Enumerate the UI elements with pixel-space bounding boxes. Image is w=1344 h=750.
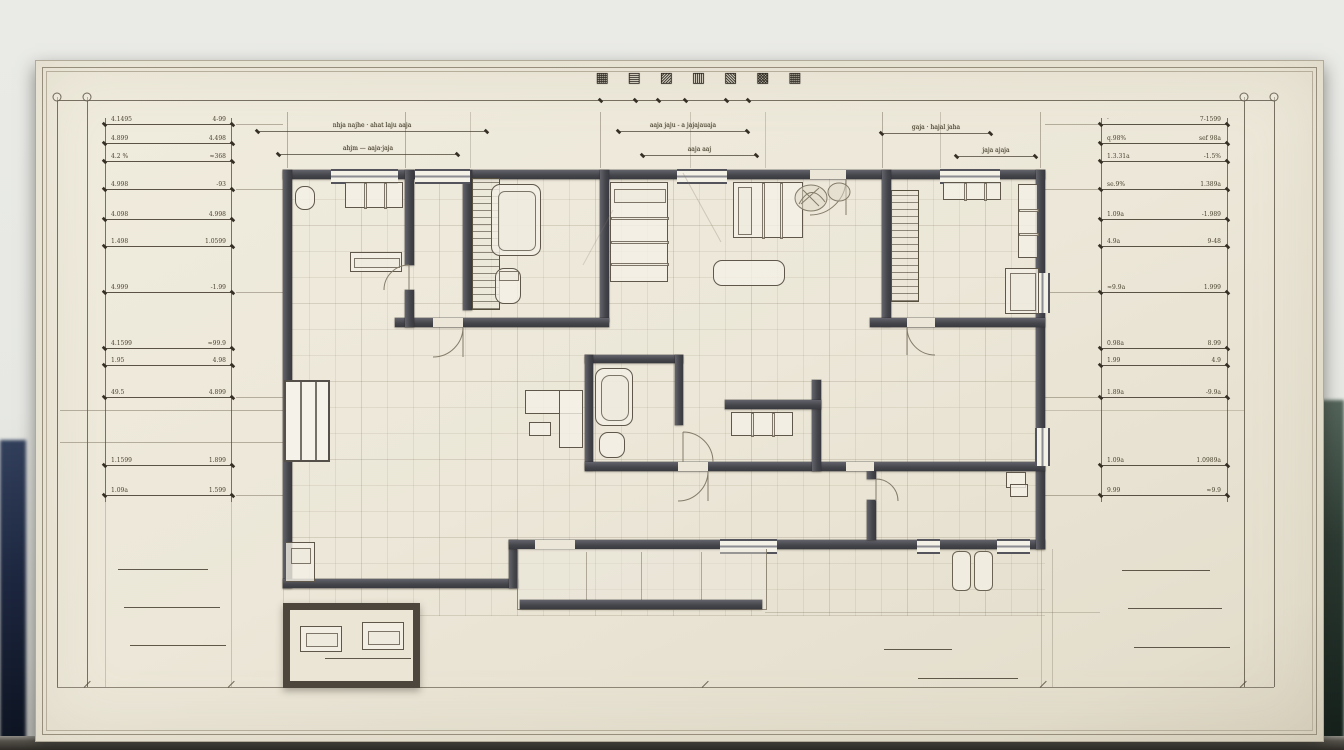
wall-bath-right (675, 355, 683, 425)
baseline-tick (633, 98, 638, 103)
dimension-value-left: 4.998 (111, 181, 128, 188)
dimension-value-left: 1.09a (111, 487, 128, 494)
extension-line (236, 124, 283, 125)
dimension-row: 1.3.31a -1.5% (1100, 161, 1228, 162)
furniture-bench (300, 626, 342, 652)
door-gap (846, 462, 874, 471)
door-gap (678, 462, 708, 471)
dimension-value-left: 4.1495 (111, 116, 132, 123)
drawing-title: ▦ ▤ ▨ ▥ ▧ ▩ ▦ (596, 70, 809, 86)
dimension-value-right: 1.599 (209, 487, 226, 494)
dimension-value-right: 1.389a (1200, 181, 1221, 188)
dimension-row: 4.2 % ≈368 (104, 161, 233, 162)
furniture-bed (610, 182, 668, 282)
dimension-value-right: -1.5% (1204, 153, 1221, 160)
dimension-value-right: 1.999 (1204, 284, 1221, 291)
fixture-box (1010, 484, 1028, 497)
paved-pad (952, 551, 971, 591)
dimension-value-left: q.98% (1107, 135, 1126, 142)
baseline-tick (724, 98, 729, 103)
dimension-text: jaja ajaja (956, 147, 1036, 154)
frame-right-line-2 (1274, 97, 1275, 687)
extension-line (1045, 189, 1100, 190)
dimension-text: gaja · hajal jaha (881, 124, 991, 131)
furniture-chair (295, 186, 315, 210)
door-gap (810, 170, 846, 179)
dimension-value-right: 4-99 (213, 116, 226, 123)
extension-line (1045, 495, 1100, 496)
dimension-line (956, 156, 1036, 157)
porch-step-line (641, 552, 642, 602)
top-dimension: aaja jaju - a jajajauaja (618, 122, 748, 132)
plan-edge-extension (1052, 549, 1053, 687)
dimension-row: 1.89a -9.9a (1100, 397, 1228, 398)
shelving-hatch (891, 190, 919, 302)
dimension-value-right: 4.899 (209, 389, 226, 396)
drawing-layer: ▦ ▤ ▨ ▥ ▧ ▩ ▦ (0, 0, 1344, 750)
dimension-text: ahjm — aaja·jaja (278, 145, 458, 152)
dimension-value-left: 1.89a (1107, 389, 1124, 396)
dimension-value-left: 4.9a (1107, 238, 1120, 245)
dimension-row: · 7-1599 (1100, 124, 1228, 125)
bay-window (284, 380, 330, 462)
paved-pad (974, 551, 993, 591)
dimension-value-left: 0.98a (1107, 340, 1124, 347)
dimension-row: 4.999 -1.99 (104, 292, 233, 293)
extension-line (236, 292, 283, 293)
dimension-value-right: 9-48 (1208, 238, 1221, 245)
wall-exterior-left (283, 170, 292, 588)
dimension-value-right: -9.9a (1206, 389, 1221, 396)
extension-line (1045, 292, 1100, 293)
dimension-value-right: 4.98 (213, 357, 226, 364)
dimension-text: nhja najhe · ahat laju aaja (257, 122, 487, 129)
furniture-bench (362, 622, 404, 650)
furniture-sofa (713, 260, 785, 286)
window (415, 169, 470, 184)
extension-line (690, 112, 691, 168)
extension-line (236, 495, 283, 496)
window (997, 539, 1030, 554)
window (917, 539, 940, 554)
frame-left-line-1 (57, 97, 58, 687)
dimension-line (278, 154, 458, 155)
wall-interior (395, 318, 609, 327)
dimension-text: aaja aaj (642, 146, 757, 153)
dimension-value-right: -1.989 (1202, 211, 1221, 218)
dimension-value-right: -1.99 (211, 284, 226, 291)
baseline-tick (656, 98, 661, 103)
extension-line (1040, 112, 1041, 168)
dimension-value-right: ≈99.9 (208, 340, 226, 347)
top-dimension: nhja najhe · ahat laju aaja (257, 122, 487, 132)
dimension-row: 1.1599 1.899 (104, 465, 233, 466)
furniture-window-seat (1005, 268, 1039, 314)
dimension-value-left: 4.098 (111, 211, 128, 218)
top-dimension: ahjm — aaja·jaja (278, 145, 458, 155)
door-gap (433, 318, 463, 327)
dimension-text: aaja jaju - a jajajauaja (618, 122, 748, 129)
top-dimension: aaja aaj (642, 146, 757, 156)
wall-interior (405, 290, 414, 327)
dimension-row: 4.998 -93 (104, 189, 233, 190)
dimension-value-left: 4.2 % (111, 153, 128, 160)
porch-step-line (701, 552, 702, 602)
dimension-row: 1.09a 1.0989a (1100, 465, 1228, 466)
dimension-value-left: 1.99 (1107, 357, 1120, 364)
dimension-value-right: 4.498 (209, 135, 226, 142)
right-dimension-ladder: · 7-1599 q.98% sef 98a 1.3.31a -1.5% se.… (1100, 0, 1228, 750)
dimension-value-right: 4.998 (209, 211, 226, 218)
dimension-value-left: 1.95 (111, 357, 124, 364)
grid-bubble (83, 93, 92, 102)
dimension-value-left: 1.09a (1107, 211, 1124, 218)
extension-line (405, 112, 406, 168)
door-gap (535, 540, 575, 549)
furniture-fireplace (285, 542, 315, 582)
dimension-value-right: 7-1599 (1200, 116, 1221, 123)
dimension-value-right: 1.899 (209, 457, 226, 464)
furniture-closet-boxes (731, 412, 793, 436)
window-mullion (315, 382, 317, 460)
dimension-row: se.9% 1.389a (1100, 189, 1228, 190)
dimension-value-left: 49.5 (111, 389, 124, 396)
furniture-wardrobe (345, 182, 403, 208)
dimension-value-left: se.9% (1107, 181, 1125, 188)
furniture-toilet (599, 432, 625, 458)
dimension-value-left: 4.999 (111, 284, 128, 291)
dimension-value-left: 1.09a (1107, 457, 1124, 464)
wall-bath-left (585, 355, 593, 470)
wall-bath-top (585, 355, 683, 363)
furniture-shower (491, 184, 541, 256)
dimension-line (257, 131, 487, 132)
window (677, 169, 727, 184)
grid-bubble (1270, 93, 1279, 102)
baseline-tick (683, 98, 688, 103)
dimension-row: 1.09a 1.599 (104, 495, 233, 496)
furniture-cabinet (1018, 184, 1038, 258)
extension-line (765, 112, 766, 168)
dimension-value-left: 1.1599 (111, 457, 132, 464)
dimension-row: 1.95 4.98 (104, 365, 233, 366)
dimension-row: 4.899 4.498 (104, 143, 233, 144)
wall-interior (882, 170, 891, 326)
extension-line (882, 112, 883, 168)
dimension-row: 9.99 ≈9.9 (1100, 495, 1228, 496)
frame-right-line-1 (1244, 97, 1245, 687)
wall-porch-bottom (520, 600, 762, 609)
wall-interior (405, 170, 414, 265)
porch-step-line (586, 552, 587, 602)
top-dimension: gaja · hajal jaha (881, 124, 991, 134)
furniture-sideboard (350, 252, 402, 272)
dimension-value-right: ≈9.9 (1206, 487, 1221, 494)
wall-exterior-bottom (509, 540, 1045, 549)
furniture-toilet (495, 268, 521, 304)
extension-line (1045, 397, 1100, 398)
furniture-coffee-table (529, 422, 551, 436)
baseline-tick (598, 98, 603, 103)
furniture-sofa-sectional (559, 390, 583, 448)
dimension-row: ≈9.9a 1.999 (1100, 292, 1228, 293)
baseline-tick (746, 98, 751, 103)
wall-interior (867, 500, 876, 540)
dimension-row: 1.99 4.9 (1100, 365, 1228, 366)
detached-outbuilding (283, 603, 420, 688)
extension-line (470, 112, 471, 168)
grid-bubble (53, 93, 62, 102)
wall-interior (725, 400, 821, 409)
wall-interior (867, 471, 876, 479)
dimension-value-right: sef 98a (1199, 135, 1221, 142)
dimension-value-left: 9.99 (1107, 487, 1120, 494)
dimension-row: 0.98a 8.99 (1100, 348, 1228, 349)
extension-line (236, 397, 283, 398)
extension-line (940, 112, 941, 168)
frame-left-line-2 (87, 97, 88, 687)
dimension-row: 1.498 1.0599 (104, 246, 233, 247)
dimension-value-right: -93 (216, 181, 226, 188)
wall-living-bottom (283, 579, 518, 588)
wall-interior (600, 170, 609, 322)
dimension-row: 49.5 4.899 (104, 397, 233, 398)
dimension-value-left: · (1107, 116, 1109, 123)
furniture-bed (733, 182, 803, 238)
furniture-dresser (943, 182, 1001, 200)
dimension-value-left: 1.498 (111, 238, 128, 245)
top-dimension: jaja ajaja (956, 147, 1036, 157)
dimension-row: 4.098 4.998 (104, 219, 233, 220)
dimension-line (881, 133, 991, 134)
grid-bubble (1240, 93, 1249, 102)
frame-top-baseline (57, 100, 1274, 101)
dimension-value-right: 8.99 (1208, 340, 1221, 347)
furniture-bathtub (595, 368, 633, 426)
window-mullion (300, 382, 302, 460)
extension-line (1045, 124, 1100, 125)
dimension-line (642, 155, 757, 156)
wall-interior (870, 318, 1045, 327)
dimension-value-left: ≈9.9a (1107, 284, 1125, 291)
extension-line (236, 189, 283, 190)
dimension-row: 4.1599 ≈99.9 (104, 348, 233, 349)
scene: ▦ ▤ ▨ ▥ ▧ ▩ ▦ (0, 0, 1344, 750)
dimension-value-left: 1.3.31a (1107, 153, 1130, 160)
dimension-row: 4.9a 9-48 (1100, 246, 1228, 247)
left-dimension-ladder: 4.1495 4-99 4.899 4.498 4.2 % ≈368 4.998… (104, 0, 233, 750)
dimension-value-right: 1.0599 (205, 238, 226, 245)
dimension-row: q.98% sef 98a (1100, 143, 1228, 144)
extension-line (600, 112, 601, 168)
window (1035, 428, 1050, 466)
extension-line (287, 112, 288, 168)
dimension-value-left: 4.899 (111, 135, 128, 142)
door-gap (907, 318, 935, 327)
dimension-line (618, 131, 748, 132)
dimension-row: 1.09a -1.989 (1100, 219, 1228, 220)
dimension-value-right: 1.0989a (1196, 457, 1221, 464)
dimension-value-right: 4.9 (1211, 357, 1221, 364)
dimension-row: 4.1495 4-99 (104, 124, 233, 125)
dimension-value-right: ≈368 (210, 153, 226, 160)
wall-interior (812, 380, 821, 471)
wall-closet (463, 170, 472, 310)
dimension-value-left: 4.1599 (111, 340, 132, 347)
